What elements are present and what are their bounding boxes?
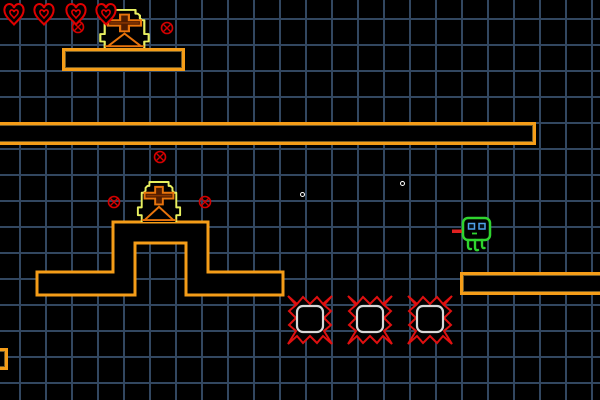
x-marker-icon: [152, 149, 168, 165]
sparkle-icon: [400, 181, 405, 186]
x-marker-icon: [159, 20, 175, 36]
platform-right: [460, 272, 600, 295]
platform-bottom-left-stub: [0, 348, 8, 370]
x-marker-icon: [197, 194, 213, 210]
heart-icon: [95, 2, 117, 26]
x-marker-icon: [106, 194, 122, 210]
spike-block: [345, 293, 395, 347]
platform-long: [0, 122, 536, 145]
totem-statue: [135, 181, 183, 222]
game-viewport[interactable]: [0, 0, 600, 400]
spike-block: [405, 293, 455, 347]
platform-top-left: [62, 48, 185, 71]
heart-icon: [3, 2, 25, 26]
player-character: [452, 216, 492, 252]
spike-block: [285, 293, 335, 347]
heart-icon: [33, 2, 55, 26]
heart-icon: [65, 2, 87, 26]
sparkle-icon: [300, 192, 305, 197]
